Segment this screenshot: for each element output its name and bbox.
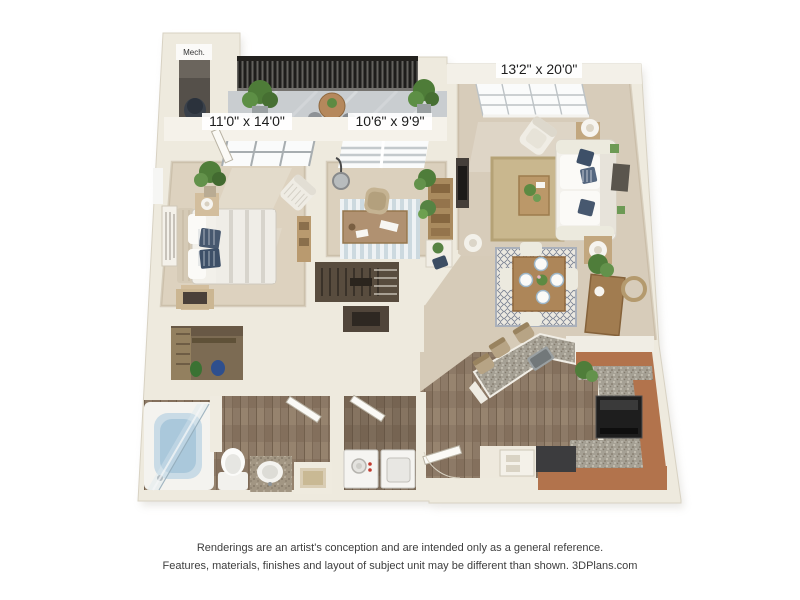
svg-text:Renderings are an artist's con: Renderings are an artist's conception an…	[197, 542, 603, 554]
svg-text:Mech.: Mech.	[183, 48, 205, 57]
svg-text:10'6" x 9'9": 10'6" x 9'9"	[356, 113, 425, 129]
svg-text:Features, materials, finishes: Features, materials, finishes and layout…	[163, 560, 638, 572]
svg-text:13'2" x 20'0": 13'2" x 20'0"	[501, 61, 578, 77]
svg-text:11'0" x 14'0": 11'0" x 14'0"	[209, 113, 285, 129]
